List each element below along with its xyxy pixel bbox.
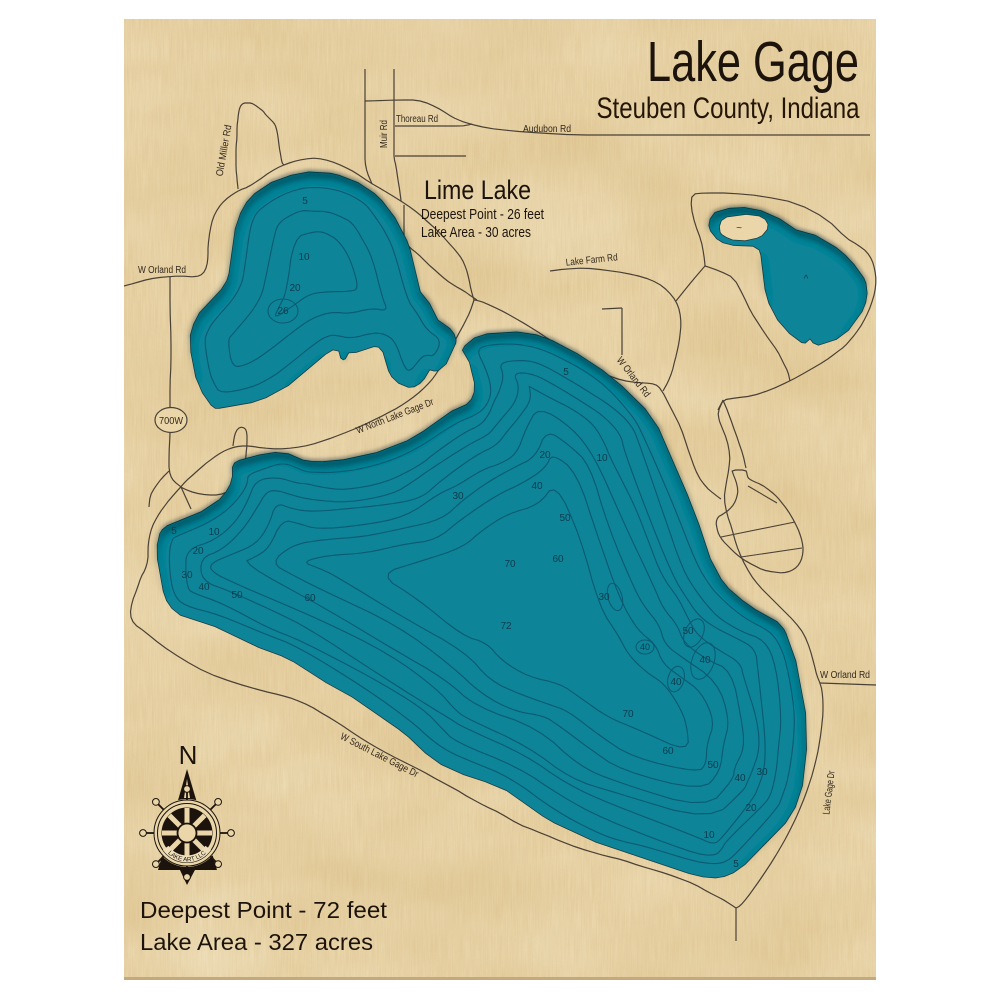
svg-text:^: ^ — [804, 274, 809, 285]
svg-text:5: 5 — [563, 367, 569, 378]
svg-text:40: 40 — [734, 773, 746, 784]
svg-text:10: 10 — [298, 252, 310, 263]
svg-text:Lake Gage: Lake Gage — [647, 30, 859, 94]
svg-text:20: 20 — [192, 546, 204, 557]
svg-text:20: 20 — [289, 283, 301, 294]
svg-text:26: 26 — [277, 306, 289, 317]
svg-text:70: 70 — [504, 559, 516, 570]
svg-text:Lime Lake: Lime Lake — [424, 175, 531, 205]
svg-text:W Orland Rd: W Orland Rd — [820, 670, 870, 681]
svg-text:W Orland Rd: W Orland Rd — [138, 265, 186, 276]
svg-text:40: 40 — [198, 582, 210, 593]
svg-text:60: 60 — [304, 593, 316, 604]
svg-text:40: 40 — [670, 677, 682, 688]
svg-text:40: 40 — [640, 642, 650, 652]
svg-text:30: 30 — [756, 767, 768, 778]
svg-text:20: 20 — [539, 450, 551, 461]
svg-text:30: 30 — [452, 491, 464, 502]
svg-text:40: 40 — [699, 655, 711, 666]
svg-text:Deepest Point - 72 feet: Deepest Point - 72 feet — [140, 897, 388, 923]
svg-text:10: 10 — [208, 527, 220, 538]
svg-text:5: 5 — [171, 526, 177, 537]
svg-text:5: 5 — [302, 196, 308, 207]
svg-text:40: 40 — [531, 481, 543, 492]
svg-text:72: 72 — [500, 621, 512, 632]
svg-text:Audubon Rd: Audubon Rd — [523, 124, 571, 135]
svg-text:Muir Rd: Muir Rd — [379, 120, 390, 148]
svg-text:~: ~ — [736, 223, 742, 234]
svg-text:10: 10 — [703, 830, 715, 841]
svg-text:50: 50 — [682, 626, 694, 637]
svg-text:30: 30 — [598, 592, 610, 603]
svg-text:10: 10 — [596, 453, 608, 464]
svg-text:50: 50 — [559, 513, 571, 524]
svg-text:20: 20 — [745, 803, 757, 814]
svg-text:60: 60 — [662, 746, 674, 757]
svg-text:N: N — [179, 740, 198, 770]
svg-text:50: 50 — [231, 590, 243, 601]
svg-text:50: 50 — [707, 760, 719, 771]
svg-text:70: 70 — [622, 709, 634, 720]
svg-text:Deepest Point - 26 feet: Deepest Point - 26 feet — [421, 207, 544, 223]
svg-text:700W: 700W — [159, 416, 184, 427]
svg-text:60: 60 — [552, 554, 564, 565]
svg-text:30: 30 — [181, 570, 193, 581]
svg-text:5: 5 — [733, 859, 739, 870]
svg-text:Lake Area - 30 acres: Lake Area - 30 acres — [421, 225, 531, 241]
svg-text:Thoreau Rd: Thoreau Rd — [396, 114, 438, 125]
svg-text:Steuben County, Indiana: Steuben County, Indiana — [597, 92, 860, 125]
svg-text:Lake Area - 327 acres: Lake Area - 327 acres — [140, 929, 373, 955]
